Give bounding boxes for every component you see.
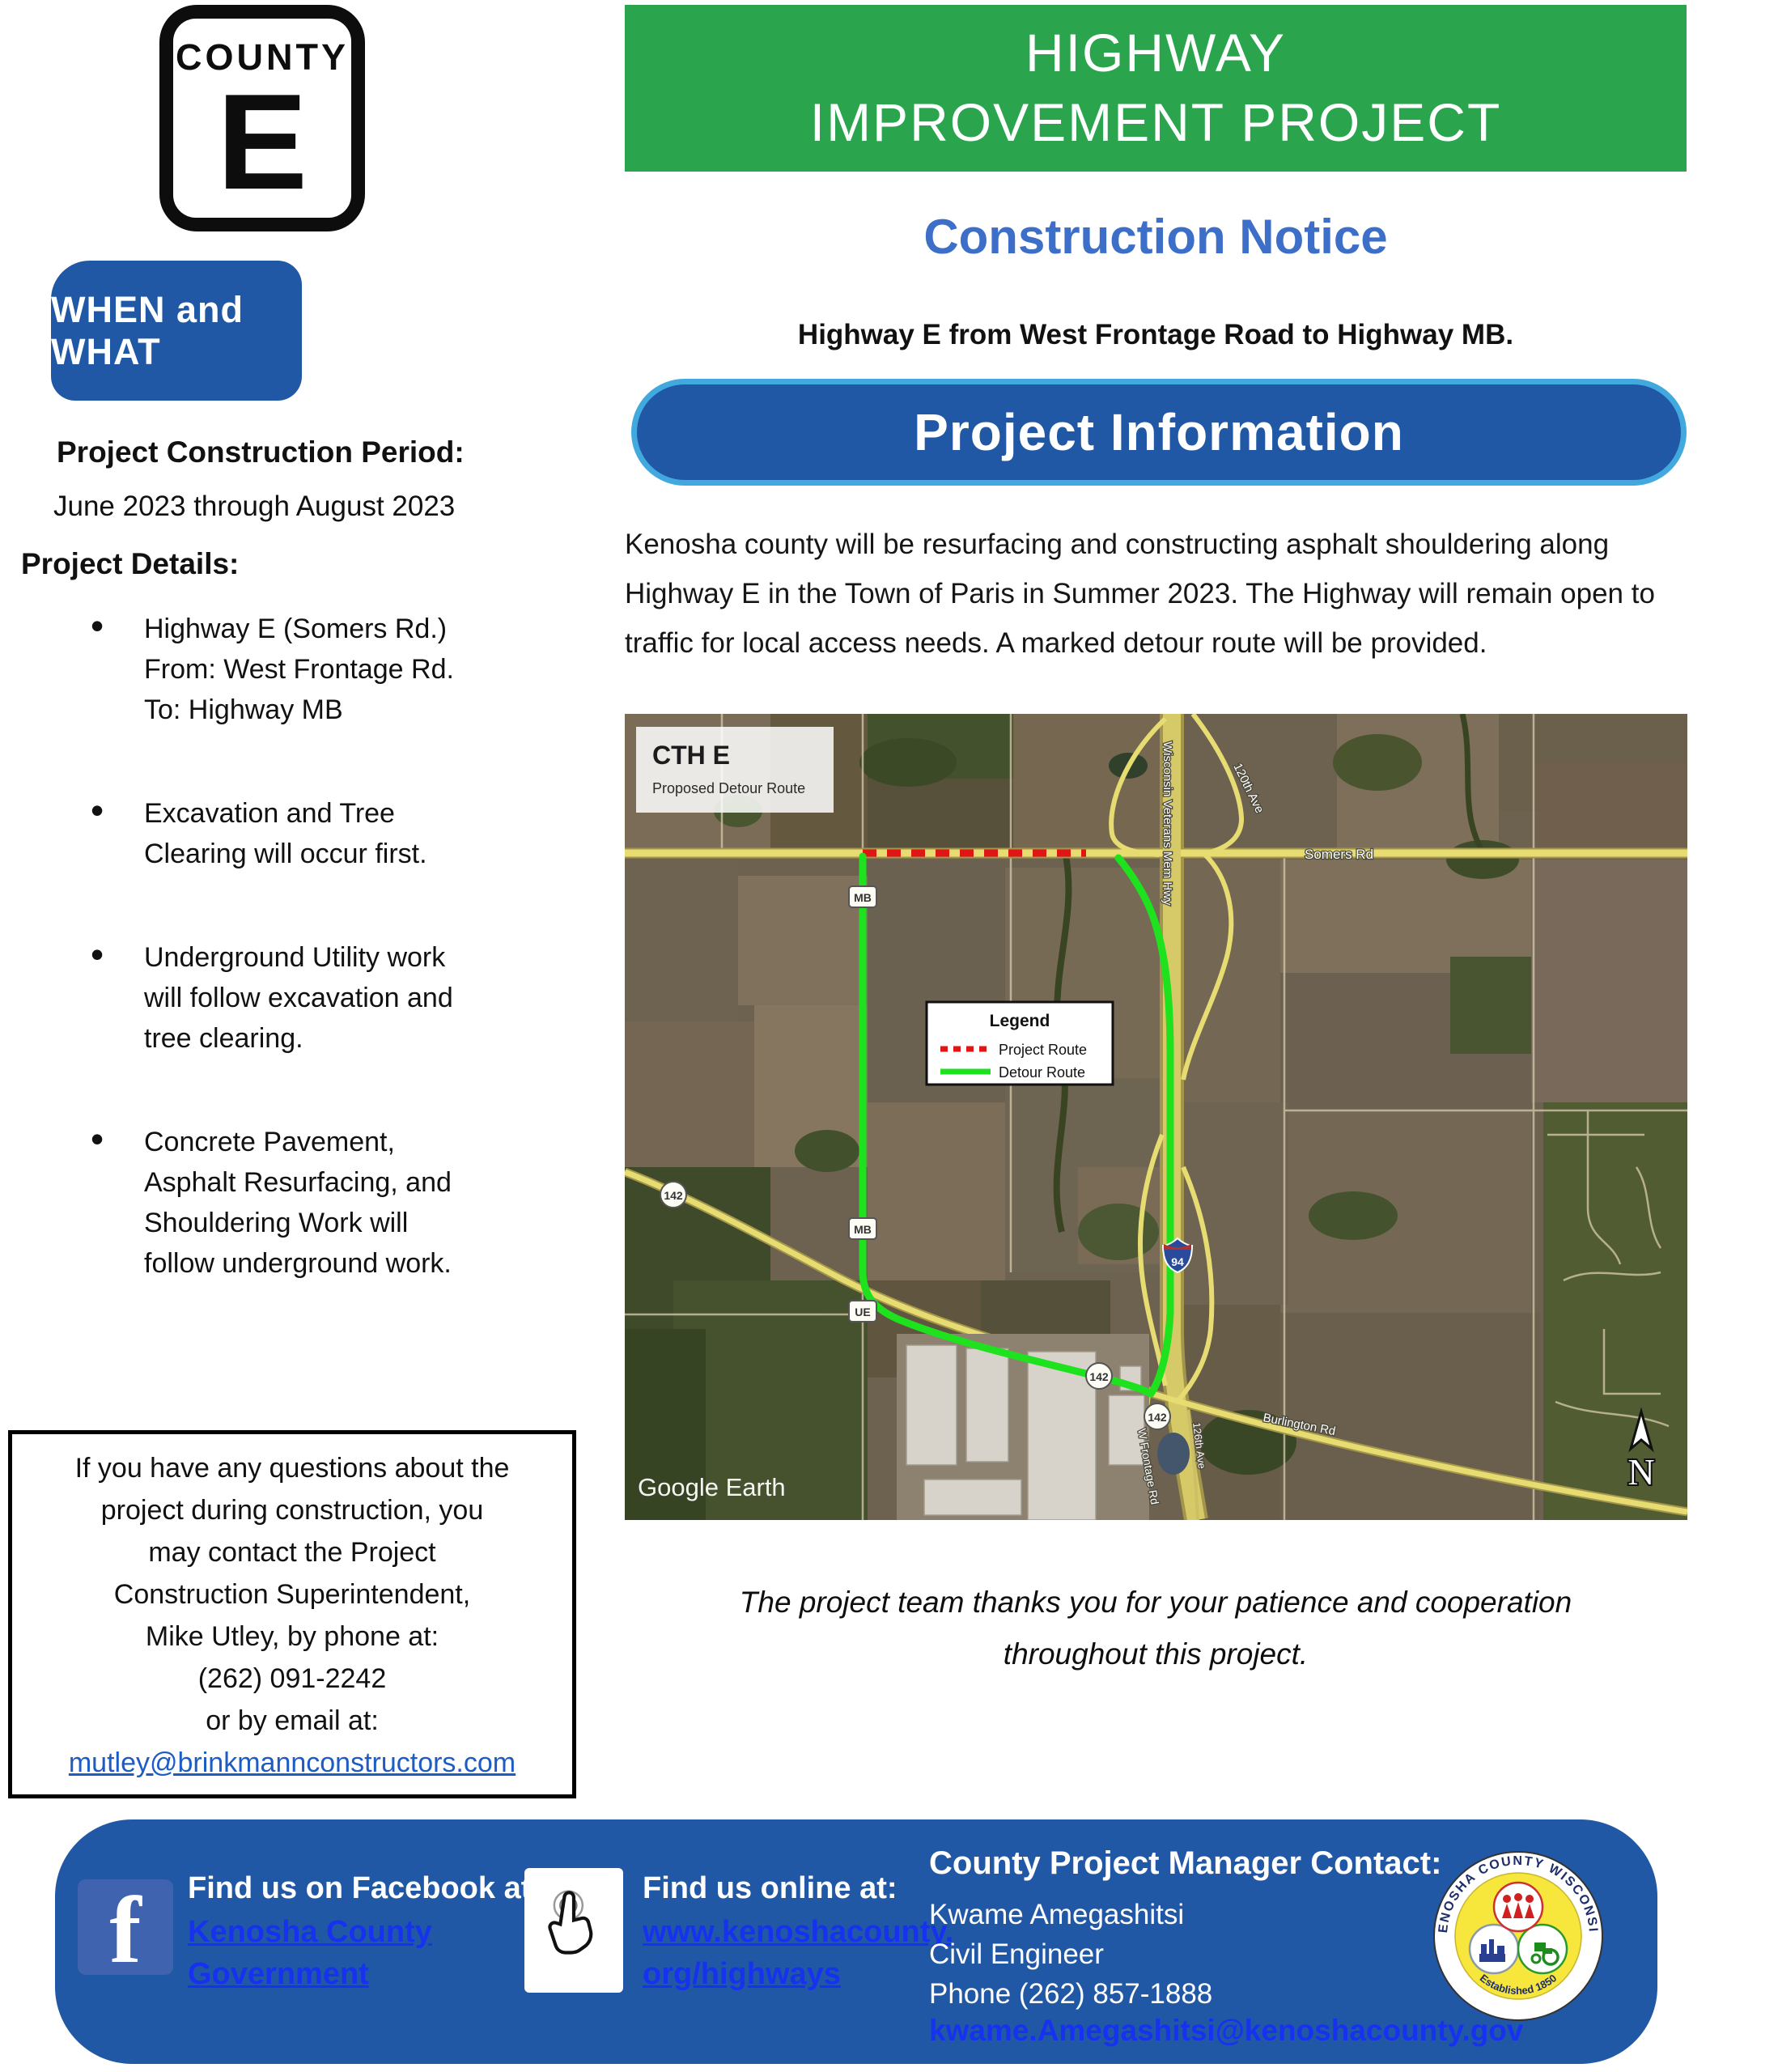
- route-shield-mb: MB: [854, 891, 872, 904]
- list-item: Underground Utility work will follow exc…: [144, 937, 573, 1059]
- highway-improvement-banner: HIGHWAY IMPROVEMENT PROJECT: [625, 5, 1687, 172]
- contact-line: (262) 091-2242: [12, 1658, 572, 1700]
- superintendent-email-link[interactable]: mutley@brinkmannconstructors.com: [69, 1747, 516, 1778]
- list-item: Concrete Pavement, Asphalt Resurfacing, …: [144, 1122, 573, 1284]
- bullet-line: Excavation and Tree: [144, 793, 573, 834]
- details-heading: Project Details:: [21, 547, 239, 581]
- route-shield-94: 94: [1171, 1255, 1184, 1268]
- map-subtitle: Proposed Detour Route: [652, 780, 805, 796]
- bullet-line: Highway E (Somers Rd.): [144, 609, 573, 649]
- facebook-link[interactable]: Government: [188, 1953, 541, 1995]
- facebook-heading: Find us on Facebook at:: [188, 1871, 541, 1906]
- bullet-line: Asphalt Resurfacing, and: [144, 1162, 573, 1203]
- bullet-line: Underground Utility work: [144, 937, 573, 978]
- project-description: Kenosha county will be resurfacing and c…: [625, 520, 1687, 668]
- bullet-line: Shouldering Work will: [144, 1203, 573, 1243]
- route-shield-142: 142: [1148, 1411, 1167, 1424]
- county-sign-face: COUNTY E: [173, 19, 351, 218]
- when-and-what-label: WHEN and WHAT: [51, 289, 302, 373]
- bullet-line: Concrete Pavement,: [144, 1122, 573, 1162]
- contact-line: project during construction, you: [12, 1489, 572, 1531]
- period-heading: Project Construction Period:: [57, 435, 465, 469]
- thank-you-line: throughout this project.: [625, 1628, 1687, 1680]
- website-link[interactable]: www.kenoshacounty.: [643, 1911, 953, 1953]
- page-title: Construction Notice: [625, 209, 1687, 265]
- map-title-box: CTH E Proposed Detour Route: [636, 727, 834, 813]
- list-item: Highway E (Somers Rd.) From: West Fronta…: [144, 609, 573, 730]
- when-and-what-banner: WHEN and WHAT: [51, 261, 302, 401]
- route-shield-ue: UE: [855, 1306, 870, 1318]
- legend-title: Legend: [990, 1012, 1050, 1030]
- google-earth-watermark: Google Earth: [638, 1473, 786, 1501]
- map-image: Somers Rd Wisconsin Veterans Mem Hwy 120…: [625, 714, 1687, 1520]
- facebook-icon-letter: f: [109, 1887, 141, 1975]
- facebook-link[interactable]: Kenosha County: [188, 1911, 541, 1953]
- footer-contact-bar: f Find us on Facebook at: Kenosha County…: [55, 1819, 1657, 2064]
- route-shield-142: 142: [664, 1189, 683, 1202]
- list-item: Excavation and Tree Clearing will occur …: [144, 793, 573, 874]
- bullet-line: tree clearing.: [144, 1018, 573, 1059]
- thank-you-line: The project team thanks you for your pat…: [625, 1577, 1687, 1628]
- contact-line: may contact the Project: [12, 1531, 572, 1573]
- county-sign-letter: E: [217, 74, 308, 210]
- legend-label: Project Route: [999, 1042, 1087, 1058]
- project-extent-subtitle: Highway E from West Frontage Road to Hig…: [625, 319, 1687, 351]
- bullet-line: Clearing will occur first.: [144, 834, 573, 874]
- facebook-icon: f: [78, 1879, 173, 1975]
- banner-line: IMPROVEMENT PROJECT: [625, 87, 1687, 157]
- route-shield-mb: MB: [854, 1223, 872, 1236]
- contact-line: Construction Superintendent,: [12, 1573, 572, 1616]
- project-details-list: Highway E (Somers Rd.) From: West Fronta…: [144, 609, 573, 1347]
- contact-box: If you have any questions about the proj…: [8, 1430, 576, 1798]
- website-link[interactable]: org/highways: [643, 1953, 953, 1995]
- route-shield-142: 142: [1089, 1370, 1109, 1383]
- detour-route-map: Somers Rd Wisconsin Veterans Mem Hwy 120…: [625, 714, 1687, 1520]
- project-information-label: Project Information: [914, 402, 1404, 462]
- seal-people-icon: [1502, 1893, 1534, 1918]
- county-e-route-sign: COUNTY E: [159, 5, 365, 231]
- contact-line: or by email at:: [12, 1700, 572, 1742]
- legend-label: Detour Route: [999, 1064, 1085, 1081]
- online-contact-block: Find us online at: www.kenoshacounty. or…: [643, 1871, 953, 1995]
- contact-line: Mike Utley, by phone at:: [12, 1616, 572, 1658]
- road-label: Wisconsin Veterans Mem Hwy: [1161, 741, 1174, 906]
- facebook-contact-block: Find us on Facebook at: Kenosha County G…: [188, 1871, 541, 1995]
- map-title: CTH E: [652, 741, 730, 770]
- map-legend: Legend Project Route Detour Route: [927, 1002, 1113, 1085]
- bullet-line: To: Highway MB: [144, 690, 573, 730]
- thank-you-note: The project team thanks you for your pat…: [625, 1577, 1687, 1680]
- contact-line: If you have any questions about the: [12, 1447, 572, 1489]
- kenosha-county-seal: KENOSHA COUNTY WISCONSIN: [1432, 1850, 1604, 2022]
- bullet-line: follow underground work.: [144, 1243, 573, 1284]
- bullet-line: will follow excavation and: [144, 978, 573, 1018]
- click-hand-icon: [524, 1868, 623, 1993]
- road-label: Somers Rd: [1305, 847, 1373, 862]
- bullet-line: From: West Frontage Rd.: [144, 649, 573, 690]
- north-label: N: [1627, 1451, 1654, 1492]
- banner-line: HIGHWAY: [625, 18, 1687, 87]
- online-heading: Find us online at:: [643, 1871, 953, 1906]
- project-information-banner: Project Information: [631, 379, 1687, 486]
- construction-notice-flyer: COUNTY E WHEN and WHAT Project Construct…: [0, 0, 1778, 2072]
- period-value: June 2023 through August 2023: [53, 490, 455, 523]
